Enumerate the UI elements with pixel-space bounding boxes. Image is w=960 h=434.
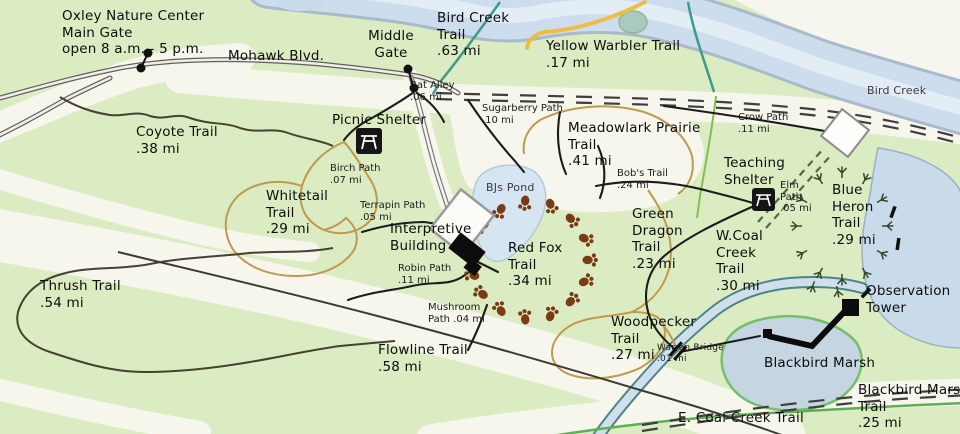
trail-map: Oxley Nature Center Main Gate open 8 a.m… <box>0 0 960 434</box>
map-graphics <box>0 0 960 434</box>
blackbird-marsh-pond <box>722 316 862 410</box>
picnic-shelter-icon <box>356 128 382 154</box>
teaching-shelter-icon <box>752 188 775 211</box>
observation-tower-icon <box>842 299 859 316</box>
